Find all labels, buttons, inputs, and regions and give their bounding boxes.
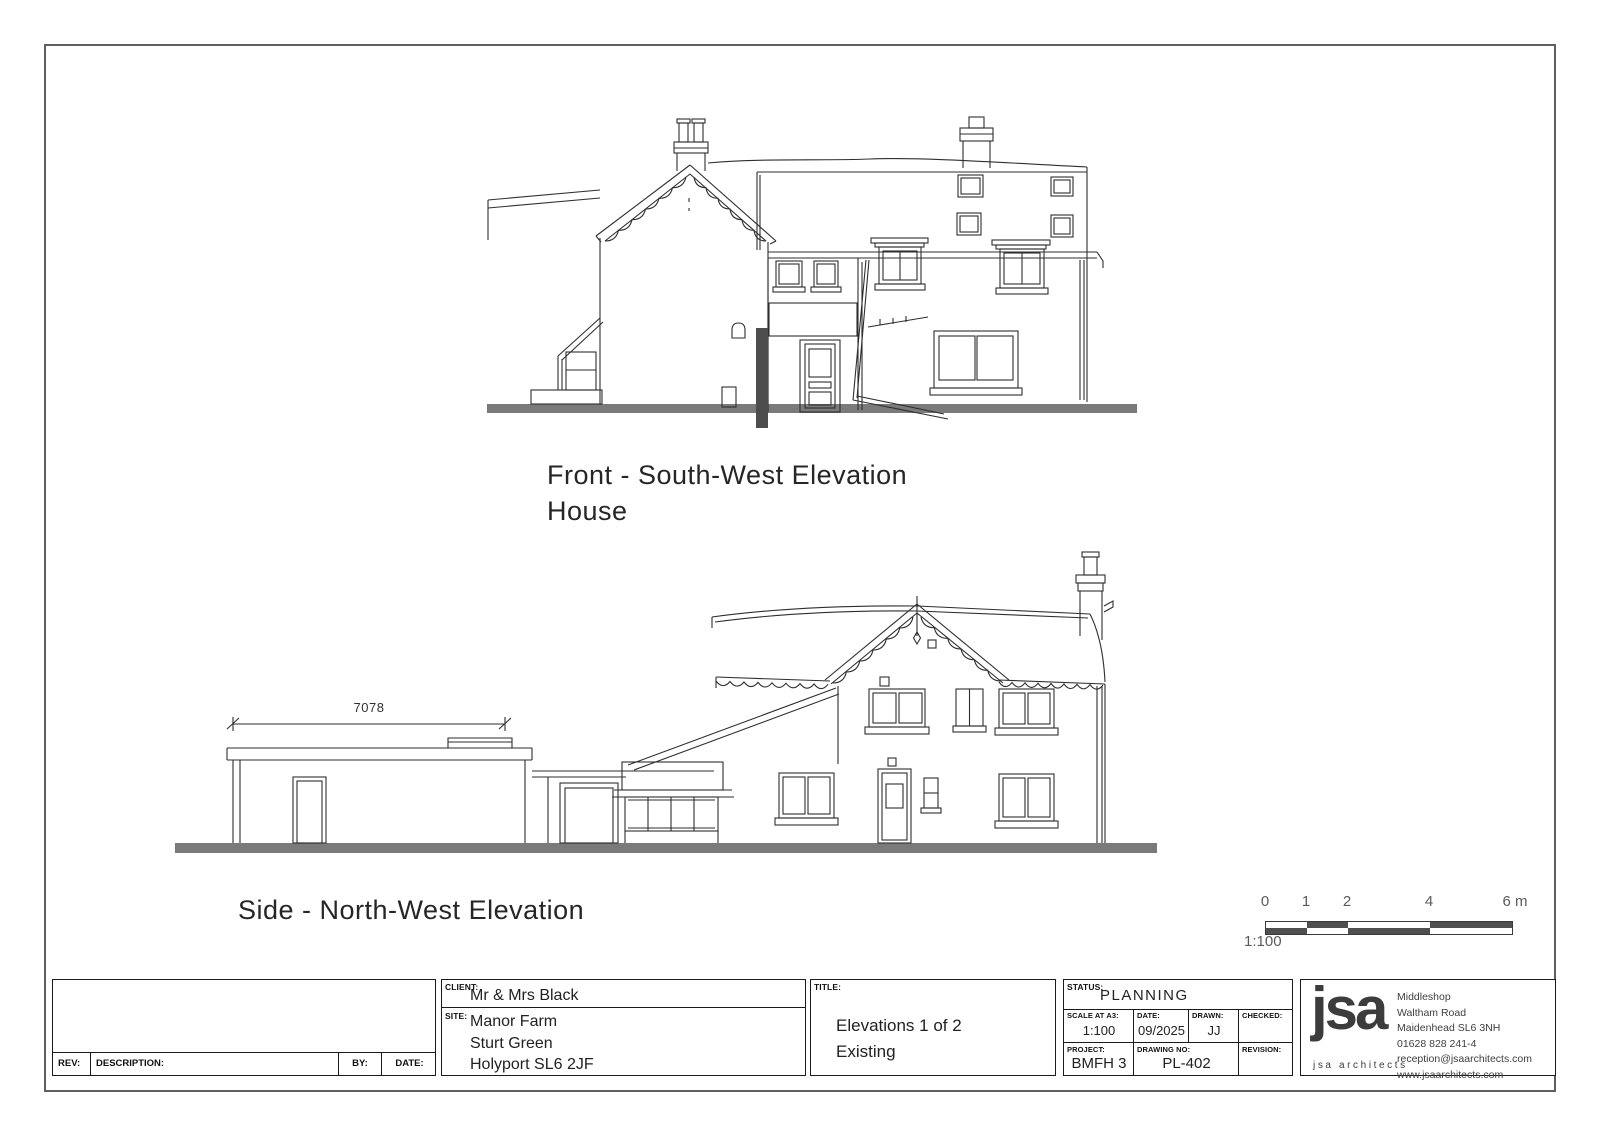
front-chimney-left [674,119,708,171]
front-lean-to [531,318,603,404]
firm-address-line4: 01628 828 241-4 [1397,1037,1532,1053]
revision-table: REV: DESCRIPTION: BY: DATE: [52,979,436,1076]
firm-address-line6: www.jsaarchitects.com [1397,1068,1532,1084]
description-label: DESCRIPTION: [91,1053,339,1076]
side-first-floor-windows [865,689,1058,735]
status-value: PLANNING [1100,987,1189,1004]
by-label: BY: [339,1053,382,1076]
title-label: TITLE: [814,982,841,992]
project-value: BMFH 3 [1064,1055,1134,1072]
firm-address-line3: Maidenhead SL6 3NH [1397,1021,1532,1037]
scale-tick-0: 0 [1252,893,1278,910]
front-ground-window [930,331,1022,395]
firm-address: Middleshop Waltham Road Maidenhead SL6 3… [1397,990,1532,1083]
firm-address-line1: Middleshop [1397,990,1532,1006]
date-label: DATE: [1137,1011,1160,1020]
scale-bar-graphic [1265,921,1513,935]
porch-door [800,340,840,412]
client-site-box: CLIENT: Mr & Mrs Black SITE: Manor Farm … [441,979,806,1076]
firm-address-line5: reception@jsaarchitects.com [1397,1052,1532,1068]
scale-tick-2: 2 [1334,893,1360,910]
front-upper-windows [957,175,1073,237]
firm-address-line2: Waltham Road [1397,1006,1532,1022]
title-box: TITLE: Elevations 1 of 2 Existing [810,979,1056,1076]
drawing-sheet: Front - South-West Elevation House [0,0,1600,1131]
jsa-logo: jsa [1311,974,1385,1043]
side-chimney [1076,552,1113,640]
dimension-line-7078 [227,717,511,731]
side-house [712,552,1113,843]
site-line3: Holyport SL6 2JF [470,1056,594,1074]
front-elevation-drawing [480,100,1150,430]
status-label: STATUS: [1067,982,1103,992]
revision-label: REVISION: [1242,1045,1281,1054]
porch-dark-post [756,328,768,428]
side-outbuilding [227,738,532,843]
front-bay-window-right [992,240,1050,294]
side-bay-window [612,762,734,843]
front-rear-roof [488,190,600,240]
date-value: 09/2025 [1134,1023,1189,1038]
drawing-title-line1: Elevations 1 of 2 [836,1016,962,1036]
rev-label: REV: [53,1053,91,1076]
checked-label: CHECKED: [1242,1011,1282,1020]
front-porch [756,258,857,428]
site-line2: Sturt Green [470,1035,553,1053]
site-line1: Manor Farm [470,1013,557,1031]
link-door [560,783,618,843]
side-eave-scallops-left [716,681,828,689]
gable-vent [732,323,745,338]
revision-date-label: DATE: [382,1053,437,1076]
side-front-door [878,758,911,843]
drawn-label: DRAWN: [1192,1011,1223,1020]
scale-tick-1: 1 [1293,893,1319,910]
project-label: PROJECT: [1067,1045,1105,1054]
front-gable-wing [596,165,776,407]
scale-value: 1:100 [1064,1023,1134,1038]
outbuilding-door [293,777,326,843]
scale-ratio: 1:100 [1244,933,1282,950]
front-elevation-label-line2: House [547,496,628,527]
drawn-value: JJ [1189,1023,1239,1038]
status-box: STATUS: PLANNING SCALE AT A3: 1:100 DATE… [1063,979,1293,1076]
side-link-block [532,771,714,843]
client-value: Mr & Mrs Black [470,987,578,1005]
scale-tick-4: 4 [1416,893,1442,910]
scale-tick-6m: 6 m [1494,893,1536,910]
side-elevation-label: Side - North-West Elevation [238,895,584,926]
front-elevation-label-line1: Front - South-West Elevation [547,460,907,491]
drawing-no-label: DRAWING NO: [1137,1045,1190,1054]
firm-box: jsa jsa architects Middleshop Waltham Ro… [1300,979,1556,1076]
site-label: SITE: [445,1011,467,1021]
jsa-tagline: jsa architects [1313,1060,1408,1071]
front-bay-window-left [871,238,928,290]
dimension-value: 7078 [233,700,505,715]
side-ground-line [175,843,1157,853]
drawing-title-line2: Existing [836,1042,896,1062]
drawing-no-value: PL-402 [1134,1055,1239,1072]
side-ground-floor-windows [775,773,1058,828]
scale-label: SCALE AT A3: [1067,1011,1119,1020]
